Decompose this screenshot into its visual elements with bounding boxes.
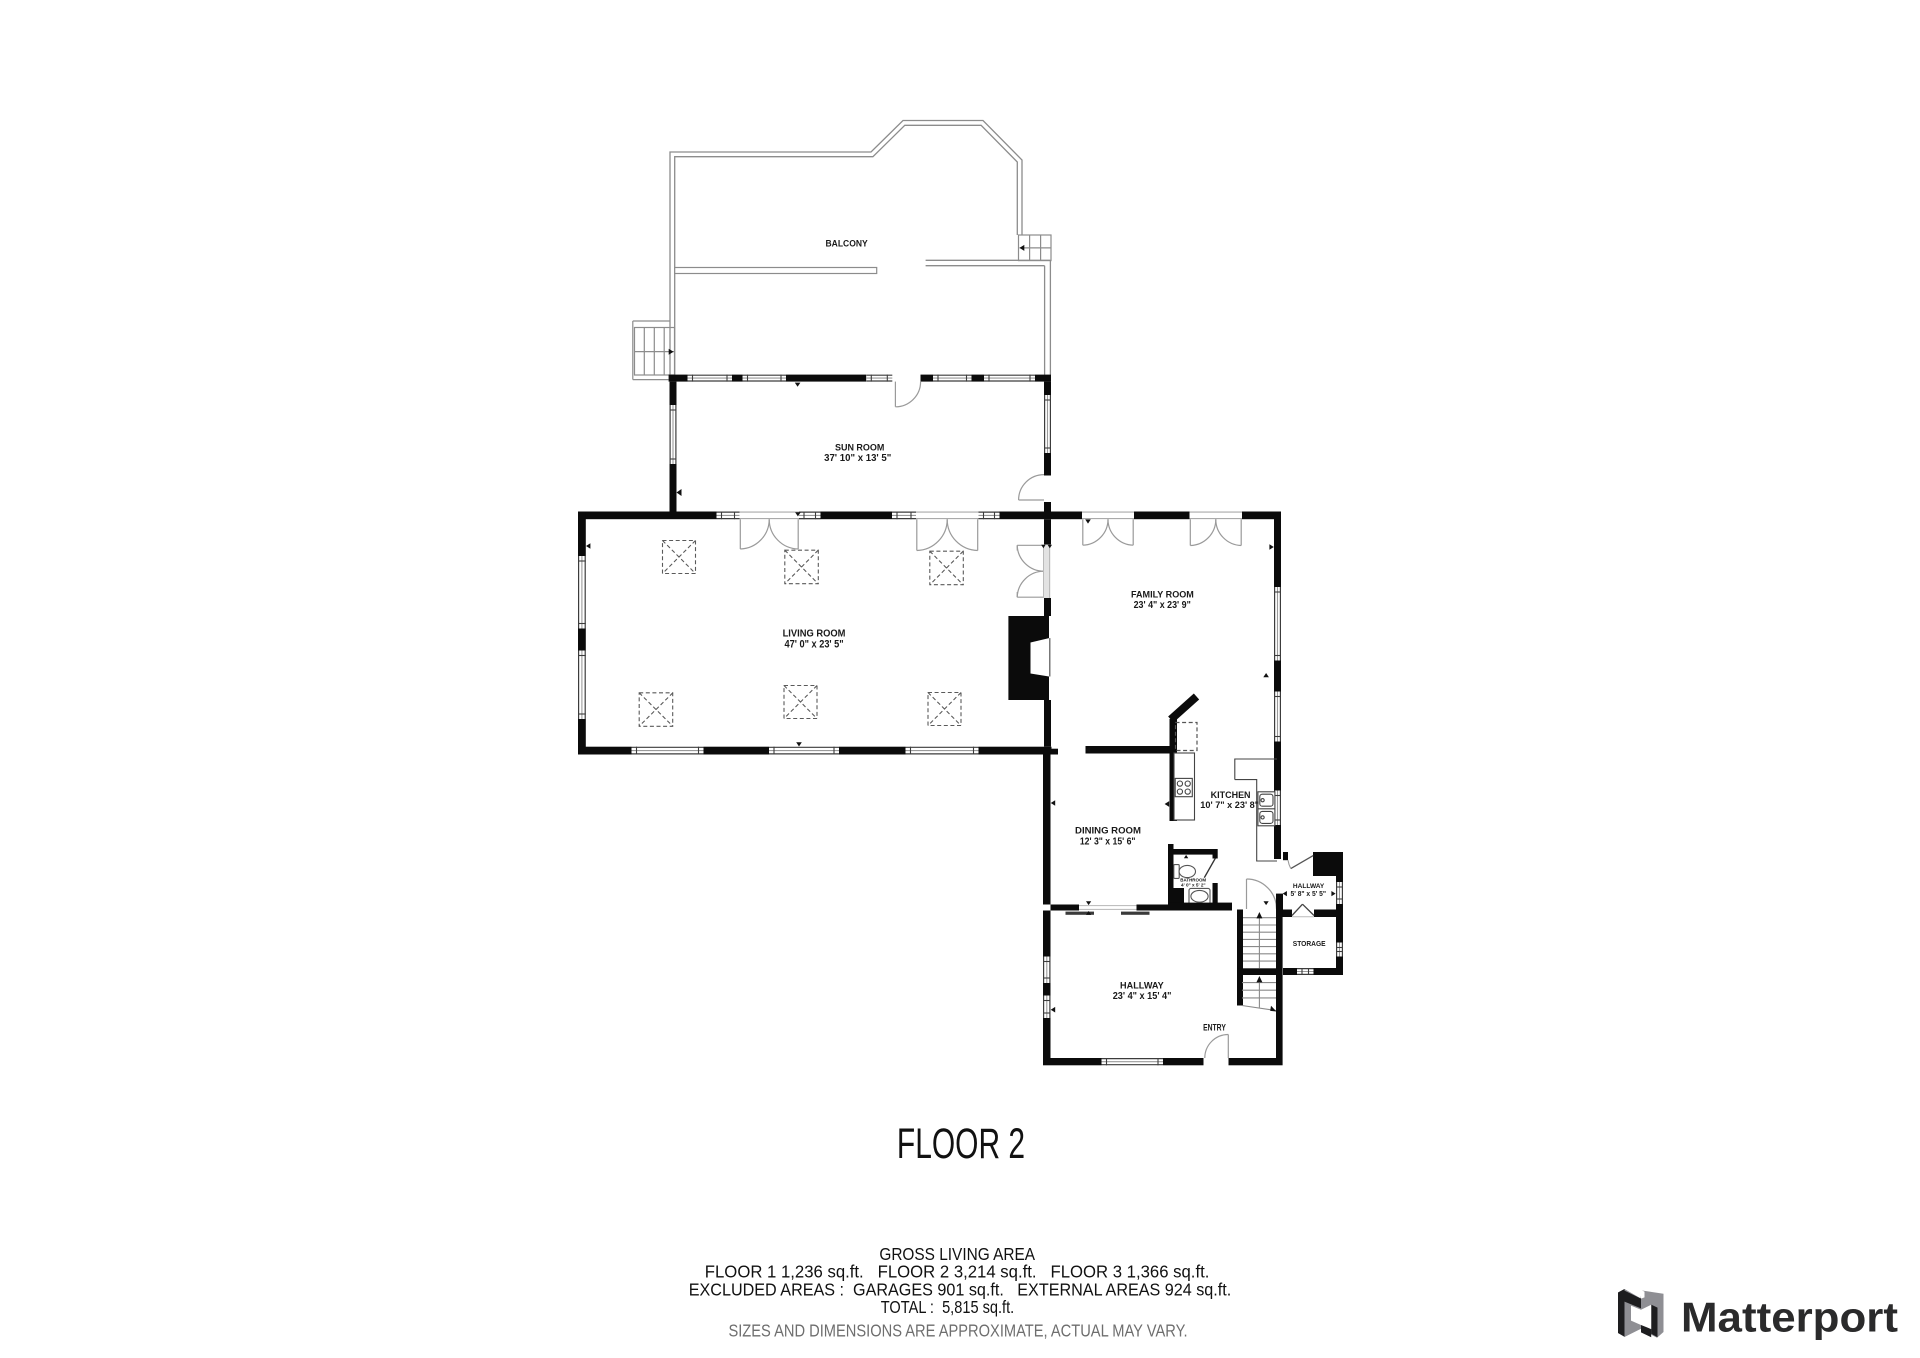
svg-text:37' 10" x 13' 5": 37' 10" x 13' 5" [824,453,891,464]
svg-text:4' 0" x 5' 2": 4' 0" x 5' 2" [1181,883,1206,888]
svg-text:Matterport: Matterport [1681,1293,1898,1340]
svg-text:FAMILY ROOM: FAMILY ROOM [1131,590,1194,600]
svg-text:STORAGE: STORAGE [1293,939,1326,948]
svg-text:47' 0" x 23' 5": 47' 0" x 23' 5" [785,638,844,650]
svg-text:TOTAL : 5,815 sq.ft.: TOTAL : 5,815 sq.ft. [881,1297,1014,1317]
svg-text:HALLWAY: HALLWAY [1120,980,1164,990]
svg-text:12' 3" x 15' 6": 12' 3" x 15' 6" [1080,837,1136,848]
svg-text:10' 7" x 23' 8": 10' 7" x 23' 8" [1200,799,1259,810]
svg-text:ENTRY: ENTRY [1203,1023,1226,1033]
svg-text:5' 8" x 5' 5": 5' 8" x 5' 5" [1291,889,1327,898]
svg-text:23' 4" x 15' 4": 23' 4" x 15' 4" [1113,990,1172,1002]
svg-text:SUN ROOM: SUN ROOM [835,443,885,453]
svg-text:FLOOR 2: FLOOR 2 [897,1120,1025,1168]
svg-text:BALCONY: BALCONY [826,239,869,249]
svg-text:23' 4" x 23' 9": 23' 4" x 23' 9" [1134,600,1191,611]
svg-text:SIZES AND DIMENSIONS ARE APPRO: SIZES AND DIMENSIONS ARE APPROXIMATE, AC… [728,1320,1187,1340]
svg-text:DINING ROOM: DINING ROOM [1075,825,1141,836]
